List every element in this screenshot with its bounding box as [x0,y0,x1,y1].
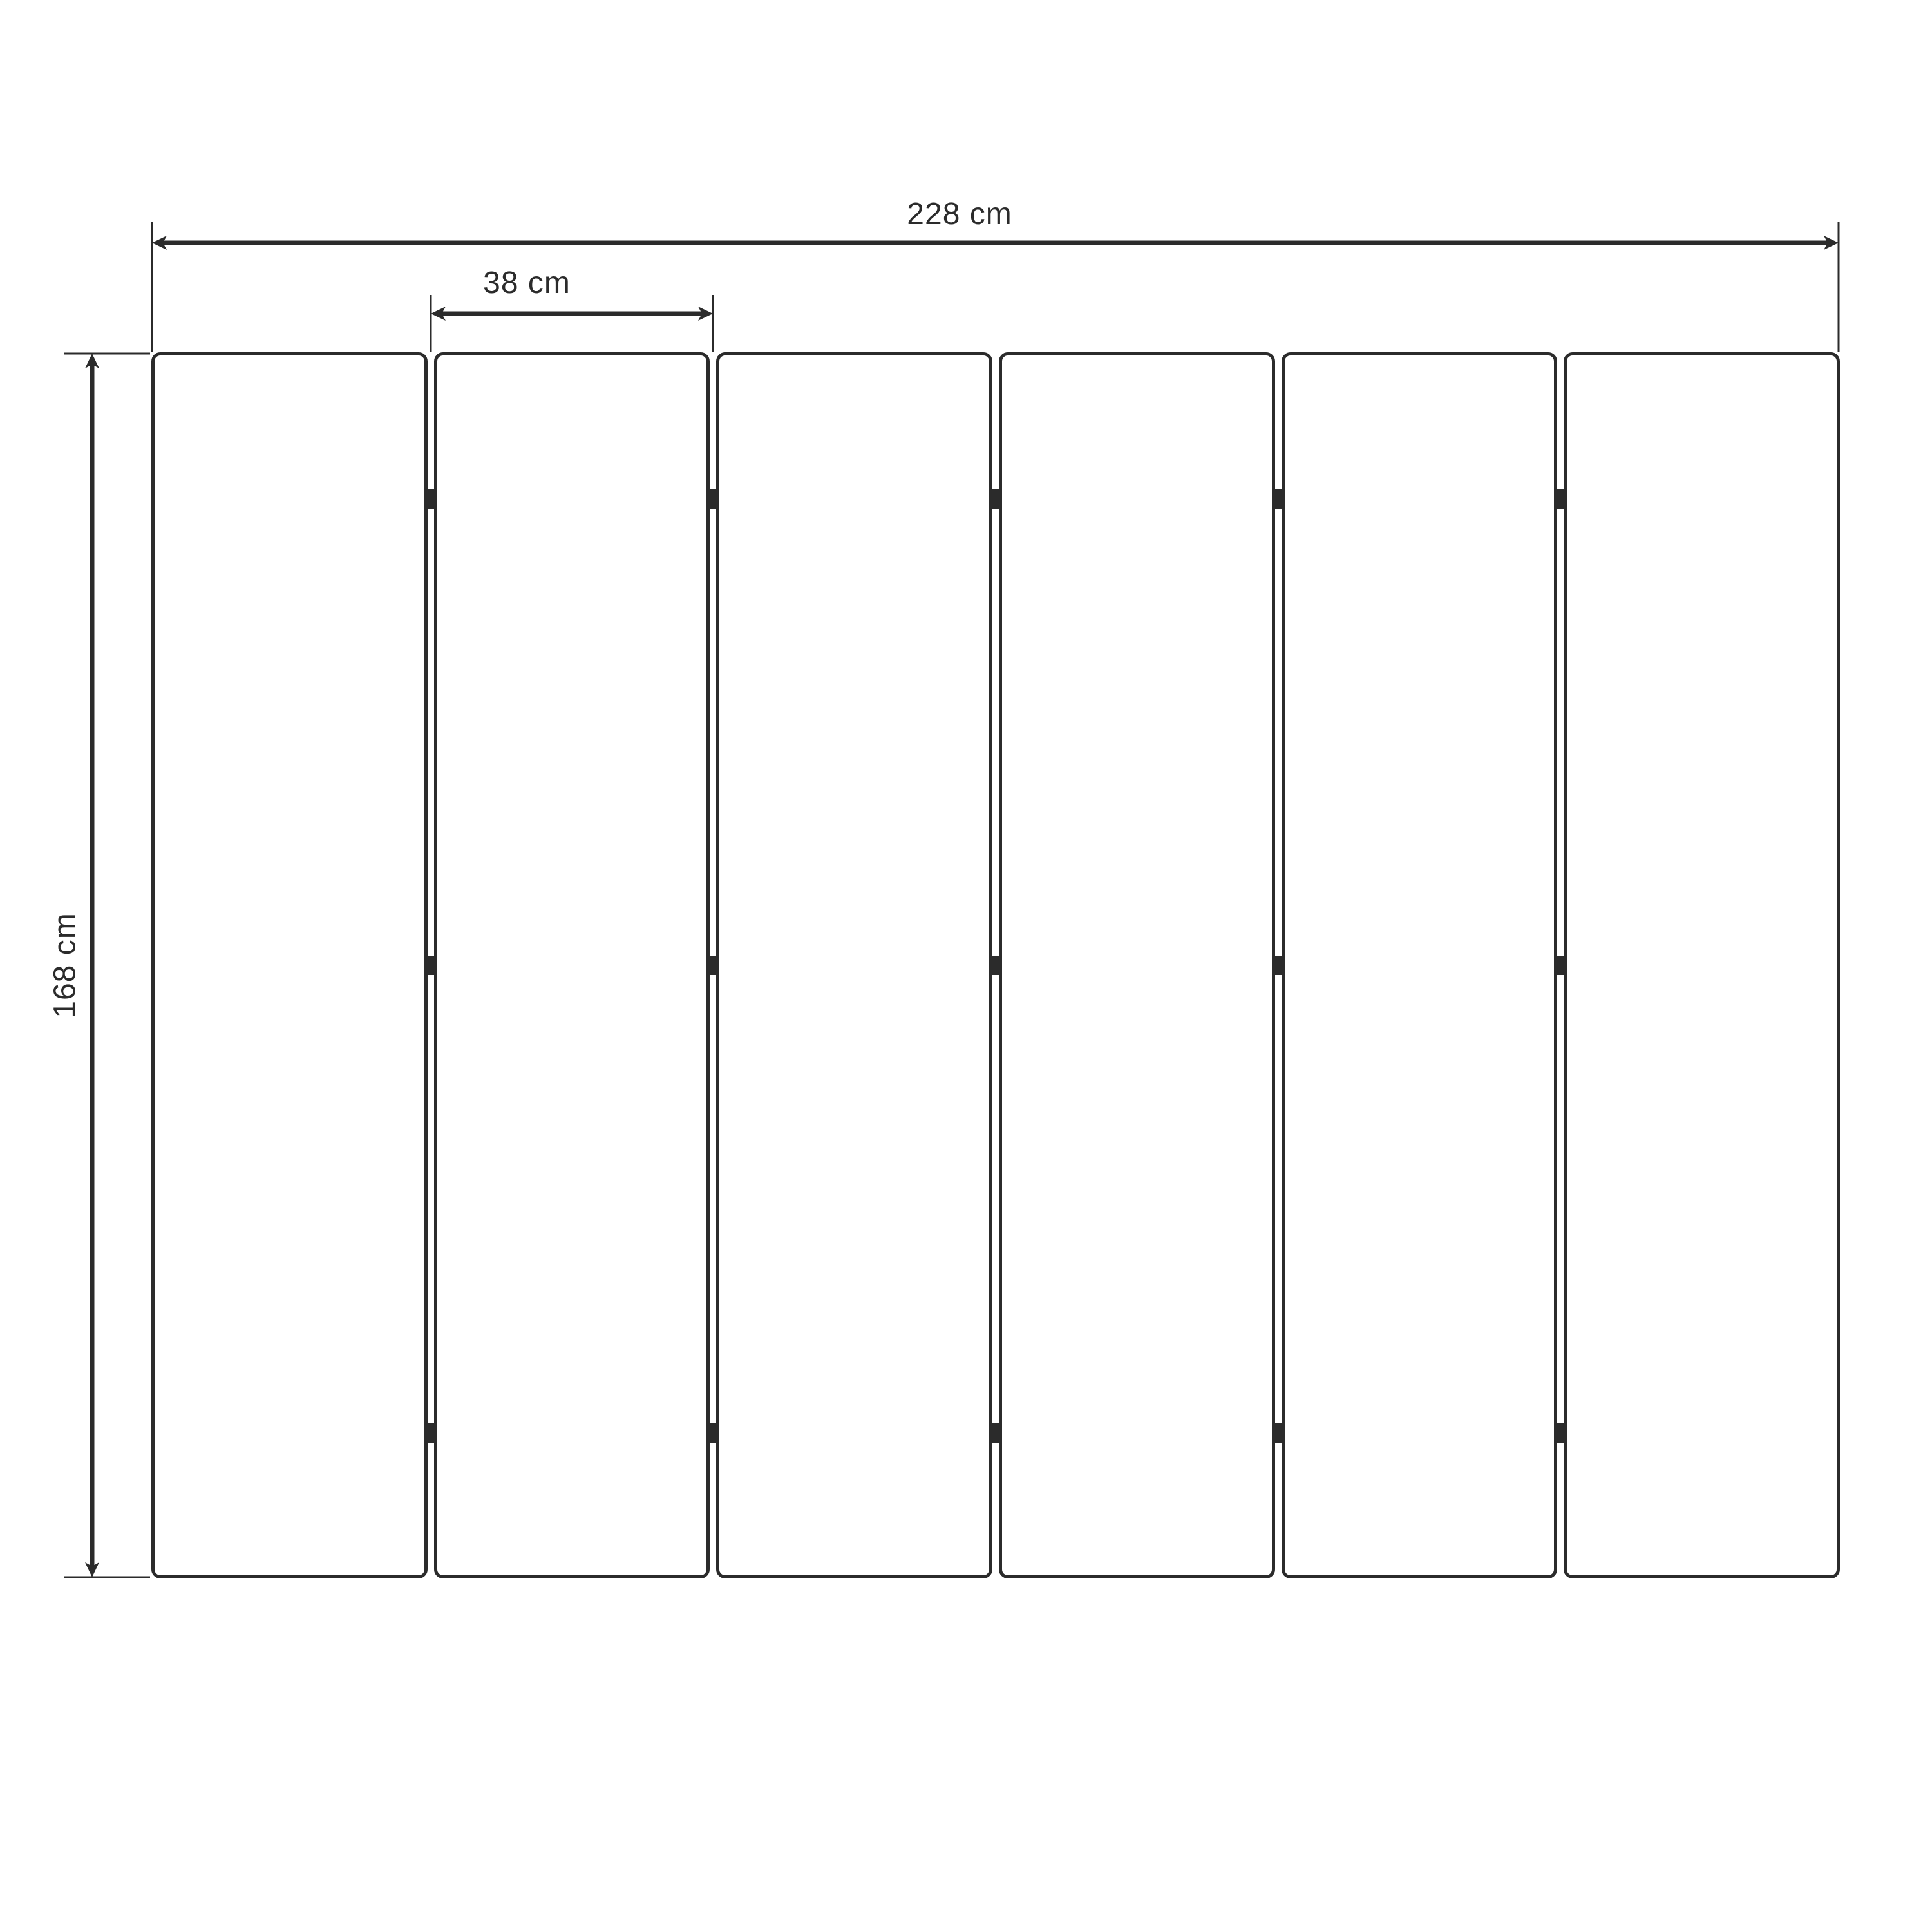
label-panel-width: 38 cm [483,266,571,300]
dimension-total-width: 228 cm [152,197,1839,352]
label-total-width: 228 cm [907,197,1012,231]
dimension-annotations: 228 cm 38 cm 168 cm [0,0,1932,1932]
dimension-panel-width: 38 cm [431,266,713,352]
label-height: 168 cm [48,913,82,1018]
dimension-height: 168 cm [48,354,151,1577]
diagram-canvas: 228 cm 38 cm 168 cm [0,0,1932,1932]
